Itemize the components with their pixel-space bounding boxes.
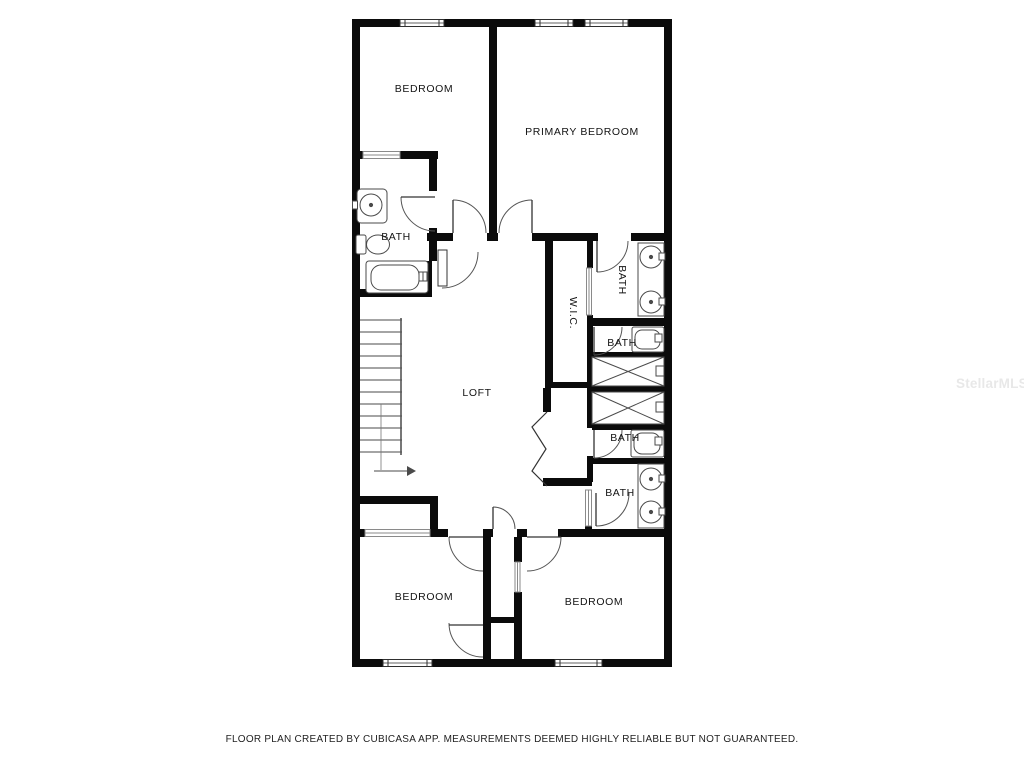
room-label-bath-ensuite: BATH bbox=[616, 265, 628, 295]
sliding-doors bbox=[363, 152, 592, 593]
floor-plan-page: BEDROOM PRIMARY BEDROOM BATH W.I.C. BATH… bbox=[0, 0, 1024, 768]
sliding-door bbox=[363, 152, 400, 159]
room-label-bath-hall-tub: BATH bbox=[610, 432, 640, 444]
door-swing bbox=[449, 623, 483, 657]
accordion-door bbox=[532, 412, 547, 486]
footer-disclaimer: FLOOR PLAN CREATED BY CUBICASA APP. MEAS… bbox=[0, 734, 1024, 745]
window bbox=[400, 20, 444, 27]
room-label-wic: W.I.C. bbox=[567, 297, 579, 329]
mls-watermark: StellarMLS bbox=[956, 376, 1024, 391]
window bbox=[585, 20, 628, 27]
room-label-bath-ensuite-tub: BATH bbox=[607, 337, 637, 349]
window bbox=[555, 660, 602, 667]
closet-cross-icon bbox=[592, 357, 664, 386]
room-label-bedroom-top-left: BEDROOM bbox=[395, 83, 453, 95]
floor-plan-drawing bbox=[0, 0, 1024, 768]
door-swing bbox=[453, 200, 486, 233]
door-swing bbox=[527, 537, 561, 571]
room-label-primary-bedroom: PRIMARY BEDROOM bbox=[525, 126, 639, 138]
room-label-loft: LOFT bbox=[462, 387, 491, 399]
sliding-door bbox=[365, 530, 430, 537]
room-label-bath-top-left: BATH bbox=[381, 231, 411, 243]
room-label-bath-hall-sinks: BATH bbox=[605, 487, 635, 499]
window bbox=[383, 660, 432, 667]
door-swing bbox=[401, 197, 435, 231]
window bbox=[535, 20, 573, 27]
door-swing bbox=[493, 507, 515, 529]
door-swing bbox=[499, 200, 532, 233]
sink-icon bbox=[353, 189, 388, 223]
room-label-bedroom-bottom-left: BEDROOM bbox=[395, 591, 453, 603]
bathtub-icon bbox=[366, 261, 428, 293]
door-swing bbox=[449, 537, 483, 571]
closet-cross-icon bbox=[592, 392, 664, 424]
sliding-door bbox=[586, 490, 592, 526]
direction-arrow bbox=[374, 466, 416, 476]
stairs-icon bbox=[360, 318, 416, 476]
sliding-door bbox=[515, 562, 520, 592]
room-label-bedroom-bottom-right: BEDROOM bbox=[565, 596, 623, 608]
door-leaf bbox=[438, 250, 447, 286]
sliding-door bbox=[587, 268, 592, 315]
